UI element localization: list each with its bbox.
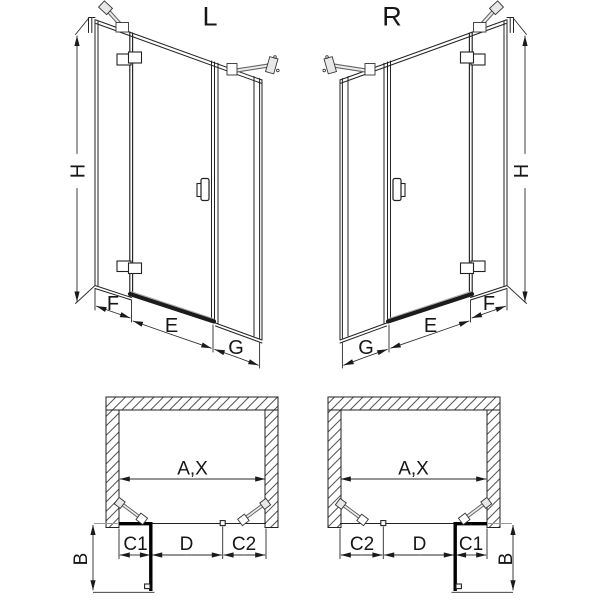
shower-enclosure-diagram-page: L H F E G R H F E G A,X C1 D C2 B A,X C2… bbox=[0, 0, 600, 600]
wall-left bbox=[106, 410, 119, 528]
dim-c2-right: C2 bbox=[350, 534, 374, 555]
variant-right-title: R bbox=[382, 2, 402, 32]
variant-left-title: L bbox=[202, 2, 217, 32]
wall-right bbox=[487, 410, 500, 528]
dim-c2-left: C2 bbox=[232, 534, 256, 555]
dim-opening-width-right: A,X bbox=[398, 459, 429, 480]
dim-projection-left: B bbox=[71, 553, 92, 566]
dim-height-right: H bbox=[511, 164, 533, 178]
dim-c1-left: C1 bbox=[123, 534, 147, 555]
elevation-right-mirrored bbox=[323, 1, 527, 368]
shower-enclosure-technical-drawing: L H F E G R H F E G A,X C1 D C2 B A,X C2… bbox=[0, 0, 600, 600]
wall-right bbox=[265, 410, 278, 528]
dim-height-left: H bbox=[68, 164, 90, 178]
dim-door-left: D bbox=[180, 534, 194, 555]
dim-projection-right: B bbox=[496, 553, 517, 566]
dim-c1-right: C1 bbox=[459, 534, 483, 555]
dim-door-width-right: E bbox=[424, 315, 437, 337]
wall-left bbox=[328, 410, 341, 528]
dim-inline-panel-right: G bbox=[358, 337, 374, 359]
dim-opening-width-left: A,X bbox=[177, 459, 208, 480]
dim-door-width-left: E bbox=[165, 315, 178, 337]
dim-side-panel-left: F bbox=[107, 293, 119, 315]
wall-top bbox=[328, 397, 500, 410]
dim-side-panel-right: F bbox=[483, 293, 495, 315]
dim-door-right: D bbox=[413, 534, 427, 555]
wall-top bbox=[106, 397, 278, 410]
dim-inline-panel-left: G bbox=[228, 337, 244, 359]
